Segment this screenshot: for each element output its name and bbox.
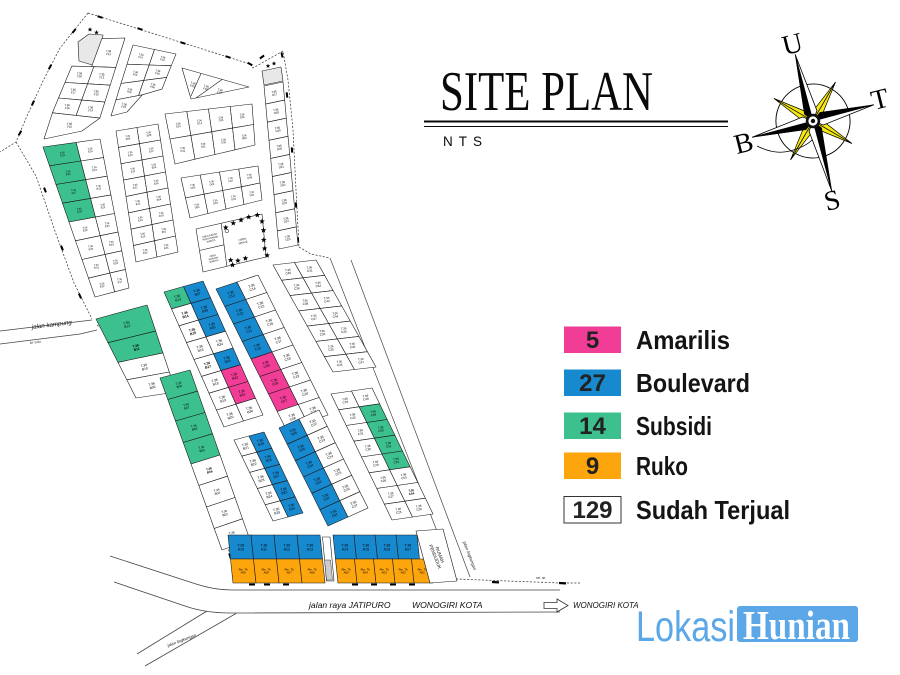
svg-text:Subsidi: Subsidi [636, 411, 712, 441]
svg-text:14: 14 [579, 413, 606, 440]
svg-text:Sudah Terjual: Sudah Terjual [636, 495, 790, 525]
svg-text:T.36C47: T.36C47 [358, 357, 365, 365]
svg-text:T.36C35: T.36C35 [328, 344, 335, 352]
svg-text:T.36F11: T.36F11 [106, 49, 112, 56]
svg-text:sel. air: sel. air [536, 576, 546, 580]
svg-text:T.36A15: T.36A15 [362, 544, 369, 552]
svg-text:T.36A13: T.36A13 [306, 544, 313, 552]
svg-text:T.36F14: T.36F14 [88, 105, 94, 112]
svg-text:T.36C46: T.36C46 [349, 342, 356, 350]
svg-text:T.36F16: T.36F16 [64, 103, 70, 110]
svg-text:T.36C39: T.36C39 [293, 283, 300, 291]
svg-text:SITE PLAN: SITE PLAN [440, 61, 653, 123]
svg-text:Amarilis: Amarilis [636, 325, 730, 355]
svg-text:T.36C38: T.36C38 [302, 298, 309, 306]
svg-text:T.36A17: T.36A17 [404, 544, 411, 552]
svg-text:T.36A10: T.36A10 [237, 544, 244, 552]
svg-text:T.36A11: T.36A11 [260, 544, 267, 552]
svg-text:9: 9 [586, 453, 599, 480]
svg-text:T.36C45: T.36C45 [341, 326, 348, 334]
svg-text:T.36F13: T.36F13 [93, 89, 99, 96]
svg-text:jalan raya JATIPURO: jalan raya JATIPURO [308, 600, 391, 610]
svg-text:T.36C41: T.36C41 [306, 265, 313, 273]
svg-text:Lokasi: Lokasi [636, 603, 735, 651]
svg-text:T.36C40: T.36C40 [285, 268, 292, 276]
svg-text:T.36A16: T.36A16 [383, 544, 390, 552]
svg-text:T.36F12: T.36F12 [99, 72, 105, 79]
svg-text:T.36A14: T.36A14 [341, 544, 348, 552]
svg-text:WONOGIRI KOTA: WONOGIRI KOTA [573, 601, 639, 610]
svg-text:T.36F18: T.36F18 [77, 71, 83, 78]
svg-text:27: 27 [579, 370, 606, 397]
svg-text:T.36C37: T.36C37 [311, 313, 318, 321]
svg-text:T.36C42: T.36C42 [315, 280, 322, 288]
svg-text:T.36C44: T.36C44 [332, 311, 339, 319]
svg-text:Hunian: Hunian [743, 602, 850, 648]
svg-text:WONOGIRI KOTA: WONOGIRI KOTA [412, 600, 483, 610]
svg-text:T.36A12: T.36A12 [283, 544, 290, 552]
svg-text:129: 129 [572, 497, 612, 524]
svg-text:T.35F15: T.35F15 [67, 122, 73, 129]
svg-text:T.36F17: T.36F17 [70, 88, 76, 95]
svg-text:T.36C36: T.36C36 [319, 329, 326, 337]
svg-text:Boulevard: Boulevard [636, 368, 750, 398]
svg-text:NTS: NTS [443, 134, 488, 149]
svg-text:T.36C43: T.36C43 [323, 296, 330, 304]
svg-text:T.36C34: T.36C34 [336, 359, 343, 367]
svg-text:5: 5 [586, 327, 599, 354]
svg-text:Ruko: Ruko [636, 451, 688, 481]
